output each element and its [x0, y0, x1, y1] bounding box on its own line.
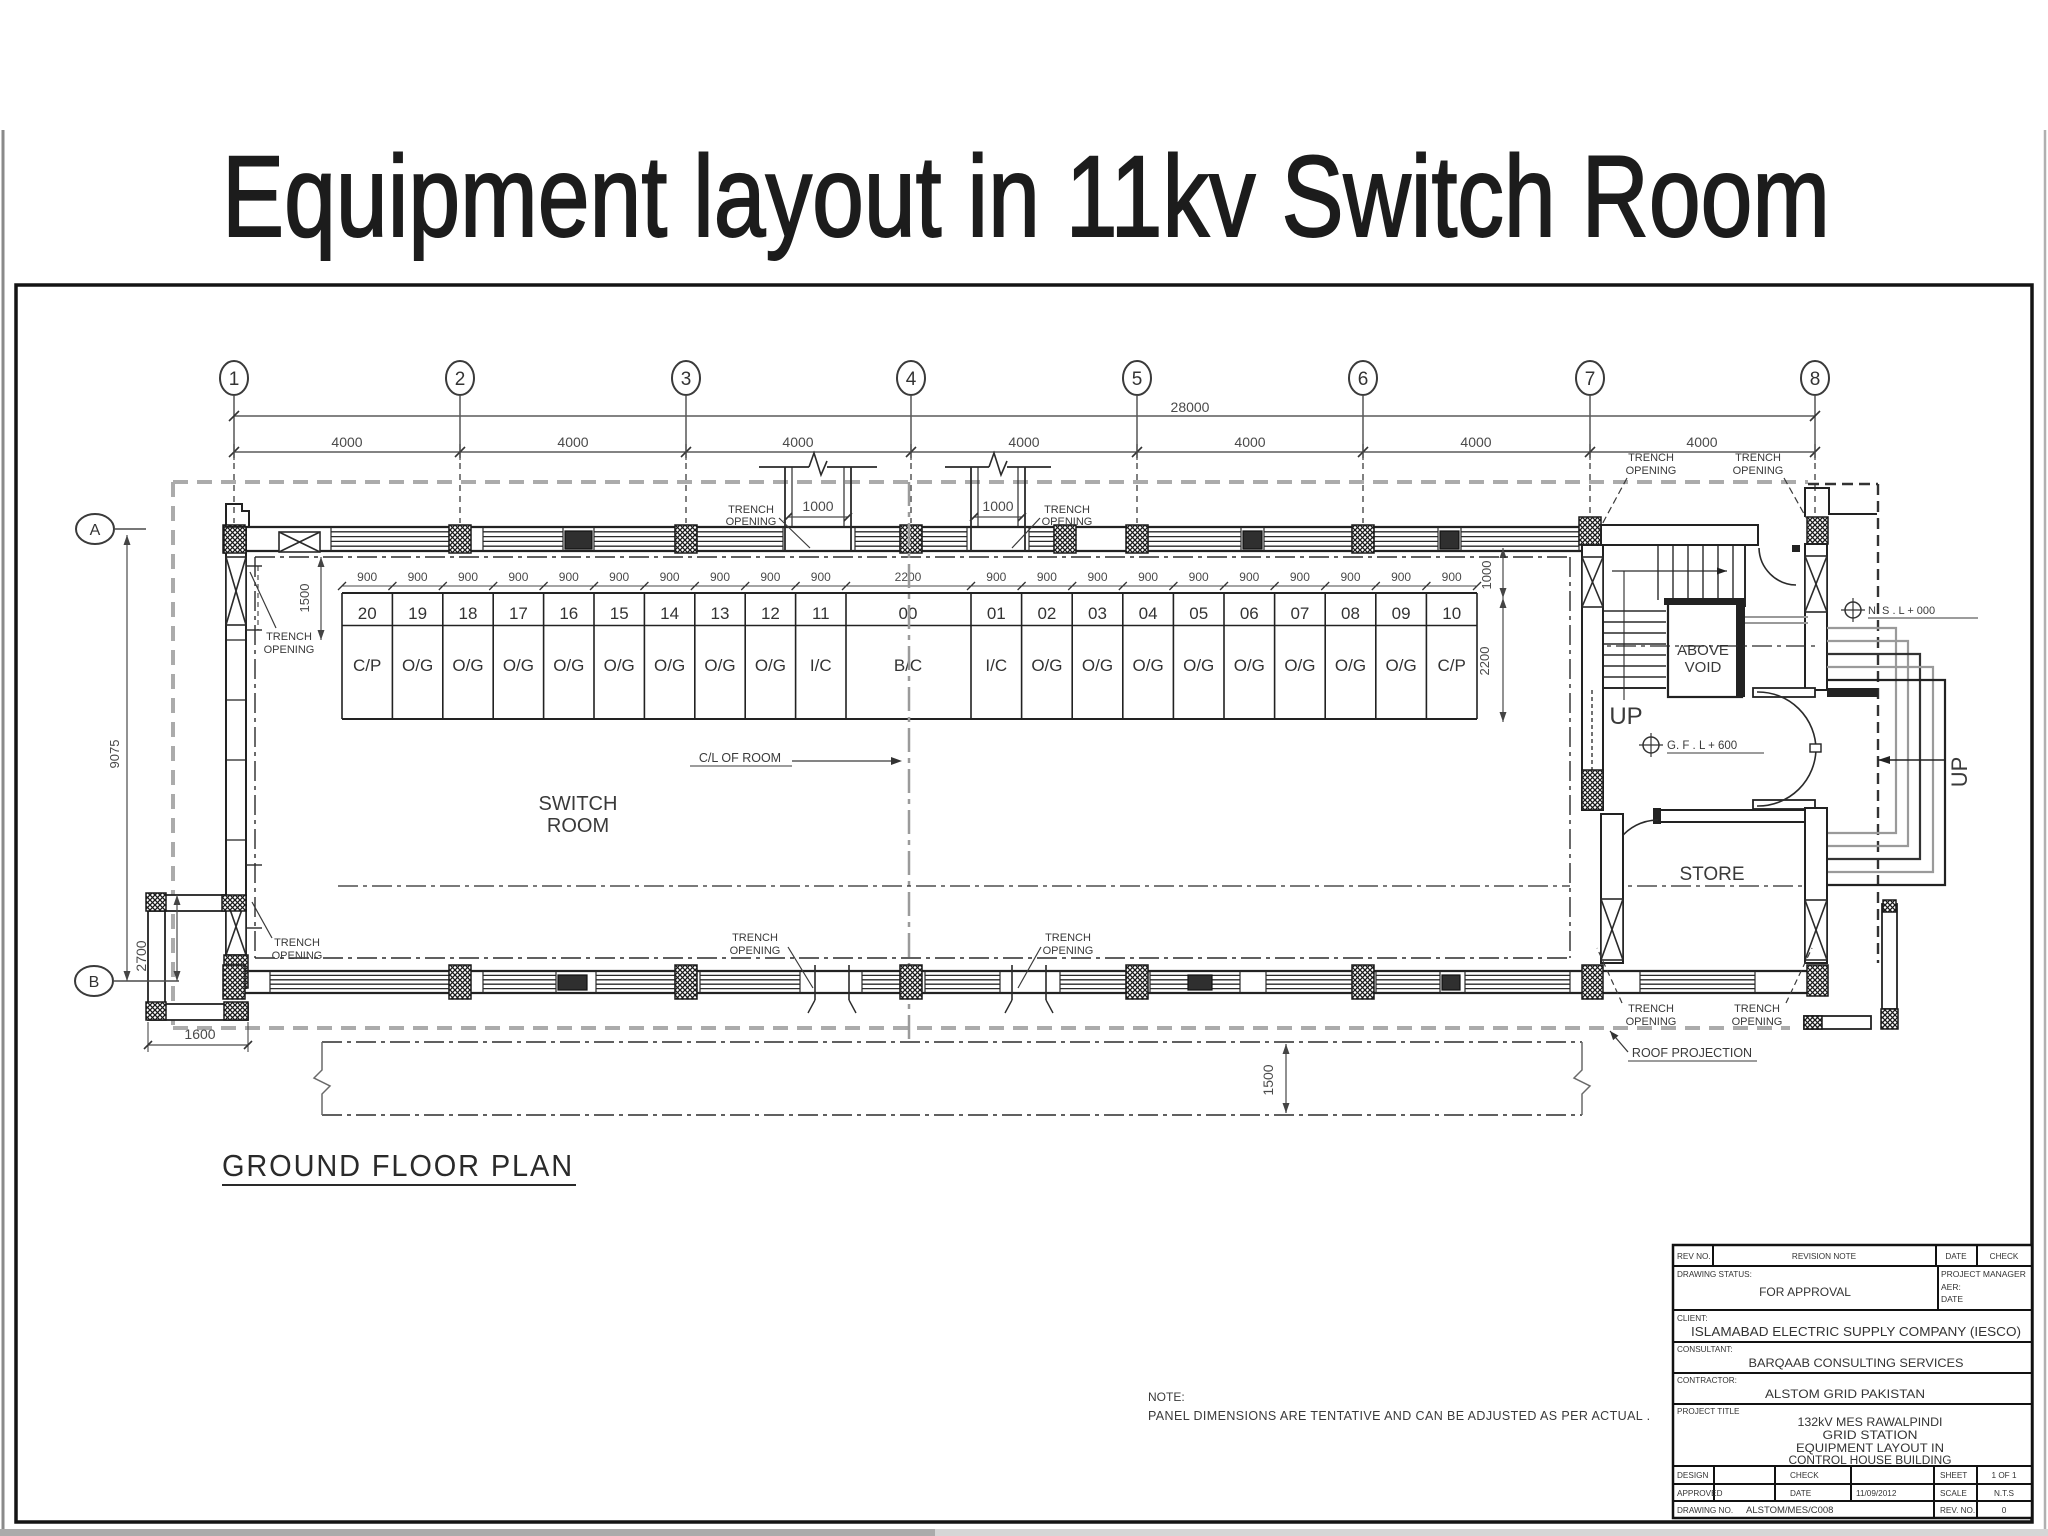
svg-text:2700: 2700 — [133, 940, 149, 971]
svg-text:TRENCH: TRENCH — [1628, 1003, 1674, 1015]
svg-text:DRAWING STATUS:: DRAWING STATUS: — [1677, 1270, 1752, 1279]
svg-text:I/C: I/C — [985, 656, 1007, 675]
svg-text:OPENING: OPENING — [1733, 465, 1784, 477]
svg-text:STORE: STORE — [1679, 864, 1744, 885]
svg-text:4000: 4000 — [1460, 434, 1491, 450]
svg-text:OPENING: OPENING — [1732, 1016, 1783, 1028]
svg-text:4000: 4000 — [1686, 434, 1717, 450]
svg-text:900: 900 — [609, 570, 629, 584]
svg-text:TRENCH: TRENCH — [266, 631, 312, 643]
svg-text:1: 1 — [229, 369, 240, 390]
svg-text:05: 05 — [1189, 604, 1208, 623]
svg-text:VOID: VOID — [1685, 659, 1722, 676]
svg-text:C/P: C/P — [353, 656, 381, 675]
svg-text:4000: 4000 — [557, 434, 588, 450]
svg-text:APPROVED: APPROVED — [1677, 1489, 1723, 1498]
svg-text:3: 3 — [681, 369, 692, 390]
svg-text:SWITCH: SWITCH — [539, 793, 618, 815]
svg-text:PANEL DIMENSIONS ARE TENTATIVE: PANEL DIMENSIONS ARE TENTATIVE AND CAN B… — [1148, 1409, 1650, 1423]
svg-text:DESIGN: DESIGN — [1677, 1471, 1708, 1480]
svg-text:OPENING: OPENING — [264, 644, 315, 656]
svg-text:900: 900 — [1391, 570, 1411, 584]
svg-text:CHECK: CHECK — [1790, 1471, 1819, 1480]
svg-text:900: 900 — [1189, 570, 1209, 584]
svg-text:TRENCH: TRENCH — [1044, 504, 1090, 516]
svg-text:1600: 1600 — [184, 1026, 215, 1042]
svg-text:DRAWING NO.: DRAWING NO. — [1677, 1506, 1733, 1515]
svg-text:900: 900 — [357, 570, 377, 584]
svg-text:28000: 28000 — [1171, 399, 1210, 415]
svg-text:O/G: O/G — [1031, 656, 1062, 675]
svg-text:AER:: AER: — [1941, 1282, 1961, 1292]
svg-text:900: 900 — [710, 570, 730, 584]
svg-text:7: 7 — [1585, 369, 1596, 390]
svg-text:SHEET: SHEET — [1940, 1471, 1967, 1480]
svg-text:UP: UP — [1609, 703, 1642, 730]
svg-text:OPENING: OPENING — [272, 950, 323, 962]
svg-text:CONSULTANT:: CONSULTANT: — [1677, 1345, 1733, 1354]
svg-text:1500: 1500 — [297, 584, 312, 613]
svg-text:O/G: O/G — [503, 656, 534, 675]
svg-text:13: 13 — [711, 604, 730, 623]
svg-text:G. F . L + 600: G. F . L + 600 — [1667, 740, 1737, 752]
svg-text:O/G: O/G — [654, 656, 685, 675]
svg-text:O/G: O/G — [604, 656, 635, 675]
svg-text:CHECK: CHECK — [1990, 1252, 2019, 1261]
svg-text:CLIENT:: CLIENT: — [1677, 1314, 1707, 1323]
svg-text:DATE: DATE — [1945, 1252, 1967, 1261]
svg-text:OPENING: OPENING — [1626, 1016, 1677, 1028]
svg-text:B: B — [89, 974, 100, 991]
svg-text:9075: 9075 — [107, 740, 122, 769]
svg-text:TRENCH: TRENCH — [274, 937, 320, 949]
svg-text:SCALE: SCALE — [1940, 1489, 1967, 1498]
svg-text:FOR APPROVAL: FOR APPROVAL — [1759, 1285, 1851, 1299]
svg-text:06: 06 — [1240, 604, 1259, 623]
svg-text:TRENCH: TRENCH — [1045, 932, 1091, 944]
svg-text:08: 08 — [1341, 604, 1360, 623]
svg-text:900: 900 — [986, 570, 1006, 584]
svg-text:TRENCH: TRENCH — [1628, 452, 1674, 464]
svg-text:19: 19 — [408, 604, 427, 623]
svg-text:11: 11 — [812, 604, 830, 623]
svg-text:UP: UP — [1947, 757, 1972, 788]
svg-text:EQUIPMENT LAYOUT IN: EQUIPMENT LAYOUT IN — [1796, 1443, 1944, 1455]
svg-text:4000: 4000 — [331, 434, 362, 450]
svg-text:15: 15 — [610, 604, 629, 623]
svg-text:900: 900 — [1340, 570, 1360, 584]
svg-text:4000: 4000 — [782, 434, 813, 450]
svg-text:O/G: O/G — [402, 656, 433, 675]
svg-text:C/P: C/P — [1438, 656, 1466, 675]
svg-text:O/G: O/G — [1234, 656, 1265, 675]
svg-text:REVISION NOTE: REVISION NOTE — [1792, 1252, 1857, 1261]
svg-text:ROOF PROJECTION: ROOF PROJECTION — [1632, 1046, 1752, 1060]
svg-text:900: 900 — [508, 570, 528, 584]
svg-text:10: 10 — [1442, 604, 1461, 623]
svg-text:Equipment layout in 11kv Switc: Equipment layout in 11kv Switch Room — [222, 133, 1830, 261]
svg-text:07: 07 — [1290, 604, 1309, 623]
svg-text:ROOM: ROOM — [547, 815, 609, 837]
svg-text:900: 900 — [458, 570, 478, 584]
svg-text:4000: 4000 — [1234, 434, 1265, 450]
svg-text:900: 900 — [1087, 570, 1107, 584]
svg-text:O/G: O/G — [1386, 656, 1417, 675]
svg-text:4: 4 — [906, 369, 917, 390]
svg-text:04: 04 — [1139, 604, 1158, 623]
svg-text:11/09/2012: 11/09/2012 — [1856, 1489, 1897, 1498]
svg-text:0: 0 — [2002, 1506, 2007, 1515]
svg-text:1500: 1500 — [1260, 1064, 1276, 1095]
svg-text:O/G: O/G — [1183, 656, 1214, 675]
svg-text:REV NO.: REV NO. — [1677, 1252, 1711, 1261]
svg-text:1000: 1000 — [982, 498, 1013, 514]
svg-text:900: 900 — [559, 570, 579, 584]
svg-text:5: 5 — [1132, 369, 1143, 390]
svg-text:12: 12 — [761, 604, 780, 623]
svg-text:O/G: O/G — [1284, 656, 1315, 675]
svg-text:01: 01 — [987, 604, 1006, 623]
svg-text:O/G: O/G — [755, 656, 786, 675]
svg-text:O/G: O/G — [553, 656, 584, 675]
svg-text:18: 18 — [459, 604, 478, 623]
svg-text:OPENING: OPENING — [1043, 945, 1094, 957]
svg-text:6: 6 — [1358, 369, 1369, 390]
svg-text:A: A — [90, 522, 101, 539]
svg-text:1000: 1000 — [1479, 561, 1494, 590]
svg-text:C/L OF ROOM: C/L OF ROOM — [699, 751, 781, 765]
svg-text:900: 900 — [811, 570, 831, 584]
svg-text:17: 17 — [509, 604, 528, 623]
svg-text:900: 900 — [1138, 570, 1158, 584]
svg-text:ISLAMABAD ELECTRIC SUPPLY COMP: ISLAMABAD ELECTRIC SUPPLY COMPANY (IESCO… — [1691, 1325, 2021, 1339]
svg-text:900: 900 — [660, 570, 680, 584]
svg-text:TRENCH: TRENCH — [728, 504, 774, 516]
svg-text:03: 03 — [1088, 604, 1107, 623]
svg-text:09: 09 — [1392, 604, 1411, 623]
svg-text:O/G: O/G — [1335, 656, 1366, 675]
svg-text:4000: 4000 — [1008, 434, 1039, 450]
svg-text:2: 2 — [455, 369, 466, 390]
svg-text:N. S . L + 000: N. S . L + 000 — [1868, 605, 1935, 617]
svg-text:900: 900 — [408, 570, 428, 584]
svg-text:REV. NO.: REV. NO. — [1940, 1506, 1975, 1515]
svg-text:20: 20 — [358, 604, 377, 623]
svg-text:14: 14 — [660, 604, 679, 623]
svg-text:ABOVE: ABOVE — [1677, 642, 1729, 659]
svg-text:OPENING: OPENING — [1626, 465, 1677, 477]
svg-text:O/G: O/G — [1082, 656, 1113, 675]
svg-text:I/C: I/C — [810, 656, 832, 675]
svg-text:PROJECT TITLE: PROJECT TITLE — [1677, 1407, 1740, 1416]
svg-text:TRENCH: TRENCH — [1734, 1003, 1780, 1015]
svg-text:GRID STATION: GRID STATION — [1823, 1430, 1918, 1442]
svg-text:PROJECT MANAGER: PROJECT MANAGER — [1941, 1269, 2026, 1279]
svg-text:16: 16 — [559, 604, 578, 623]
svg-text:ALSTOM GRID PAKISTAN: ALSTOM GRID PAKISTAN — [1765, 1387, 1925, 1401]
svg-text:900: 900 — [1290, 570, 1310, 584]
svg-text:900: 900 — [1037, 570, 1057, 584]
svg-text:OPENING: OPENING — [730, 945, 781, 957]
svg-text:TRENCH: TRENCH — [1735, 452, 1781, 464]
svg-text:DATE: DATE — [1790, 1489, 1812, 1498]
svg-text:CONTROL HOUSE BUILDING: CONTROL HOUSE BUILDING — [1789, 1455, 1952, 1467]
svg-text:900: 900 — [760, 570, 780, 584]
svg-text:900: 900 — [1239, 570, 1259, 584]
svg-text:O/G: O/G — [1133, 656, 1164, 675]
svg-text:NOTE:: NOTE: — [1148, 1390, 1185, 1404]
svg-text:2200: 2200 — [1477, 647, 1492, 676]
svg-text:GROUND FLOOR PLAN: GROUND FLOOR PLAN — [222, 1148, 574, 1183]
svg-text:900: 900 — [1442, 570, 1462, 584]
svg-text:132kV MES RAWALPINDI: 132kV MES RAWALPINDI — [1798, 1417, 1943, 1429]
svg-text:OPENING: OPENING — [726, 516, 777, 528]
svg-text:O/G: O/G — [452, 656, 483, 675]
svg-text:N.T.S: N.T.S — [1994, 1489, 2015, 1498]
svg-text:CONTRACTOR:: CONTRACTOR: — [1677, 1376, 1737, 1385]
svg-text:1000: 1000 — [802, 498, 833, 514]
svg-text:O/G: O/G — [704, 656, 735, 675]
svg-text:ALSTOM/MES/C008: ALSTOM/MES/C008 — [1746, 1505, 1833, 1516]
svg-text:TRENCH: TRENCH — [732, 932, 778, 944]
svg-text:DATE: DATE — [1941, 1294, 1963, 1304]
svg-text:OPENING: OPENING — [1042, 516, 1093, 528]
svg-text:8: 8 — [1810, 369, 1821, 390]
svg-text:BARQAAB CONSULTING SERVICES: BARQAAB CONSULTING SERVICES — [1749, 1356, 1964, 1370]
svg-text:02: 02 — [1037, 604, 1056, 623]
svg-text:1 OF 1: 1 OF 1 — [1991, 1471, 2016, 1480]
